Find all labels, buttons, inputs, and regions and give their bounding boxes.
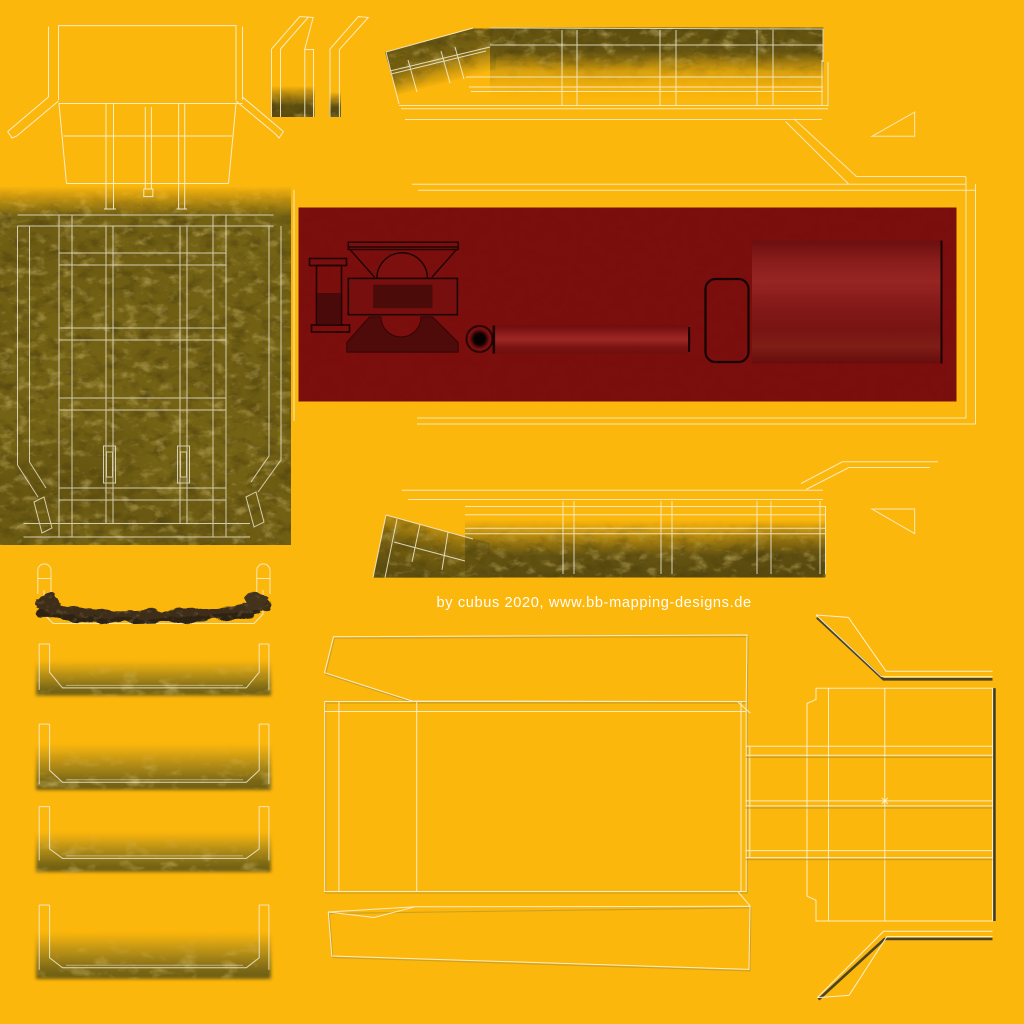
svg-text:by cubus 2020, www.bb-mapping-: by cubus 2020, www.bb-mapping-designs.de [437, 595, 752, 611]
